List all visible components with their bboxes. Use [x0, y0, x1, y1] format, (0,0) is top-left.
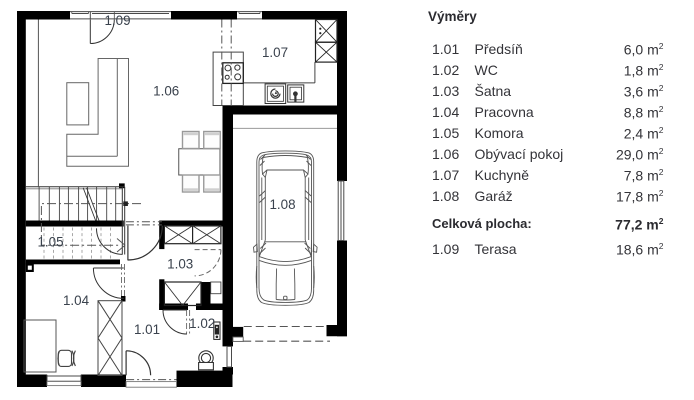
svg-text:1.04: 1.04 — [63, 293, 90, 308]
svg-text:1.08: 1.08 — [269, 197, 295, 212]
svg-text:1.05: 1.05 — [37, 235, 63, 250]
svg-text:1.03: 1.03 — [167, 257, 193, 272]
svg-text:1.09: 1.09 — [104, 13, 130, 28]
svg-text:1.07: 1.07 — [262, 45, 288, 60]
svg-text:1.01: 1.01 — [134, 322, 160, 337]
svg-text:1.02: 1.02 — [189, 316, 215, 331]
svg-text:1.06: 1.06 — [153, 83, 179, 98]
